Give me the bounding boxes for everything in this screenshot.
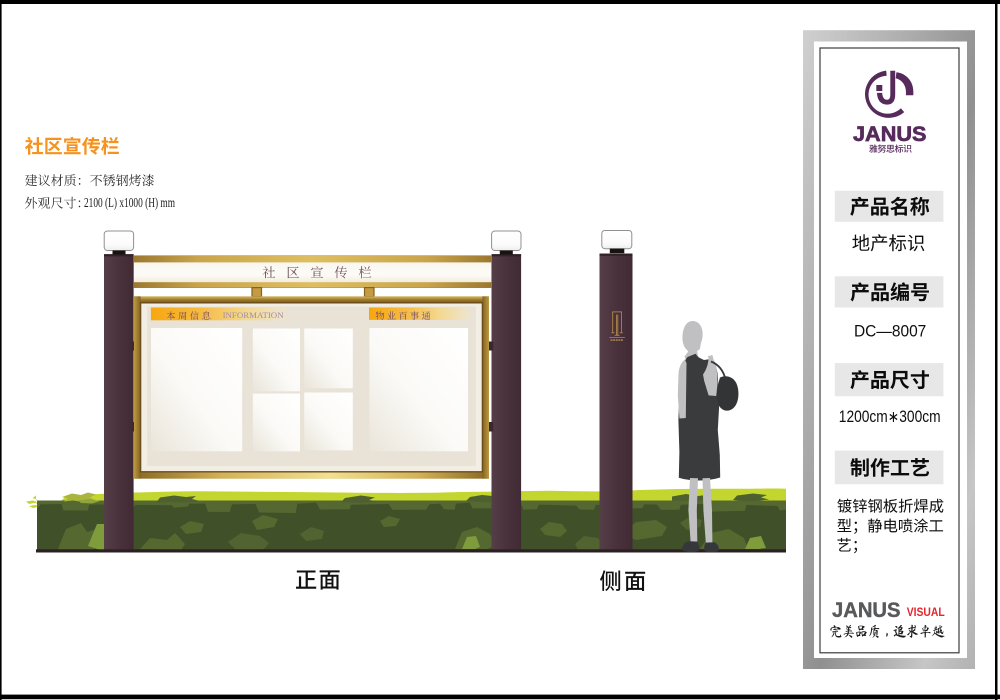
svg-text:JANUS: JANUS (853, 121, 927, 146)
svg-text:INFORMATION: INFORMATION (223, 310, 285, 320)
svg-text:VISUAL: VISUAL (907, 606, 945, 619)
svg-text:1200cm∗300cm: 1200cm∗300cm (839, 408, 941, 426)
svg-text:DC—8007: DC—8007 (854, 322, 926, 341)
svg-text:2100 (L) x1000 (H) mm: 2100 (L) x1000 (H) mm (84, 195, 175, 210)
svg-text:JANUS: JANUS (832, 598, 901, 622)
